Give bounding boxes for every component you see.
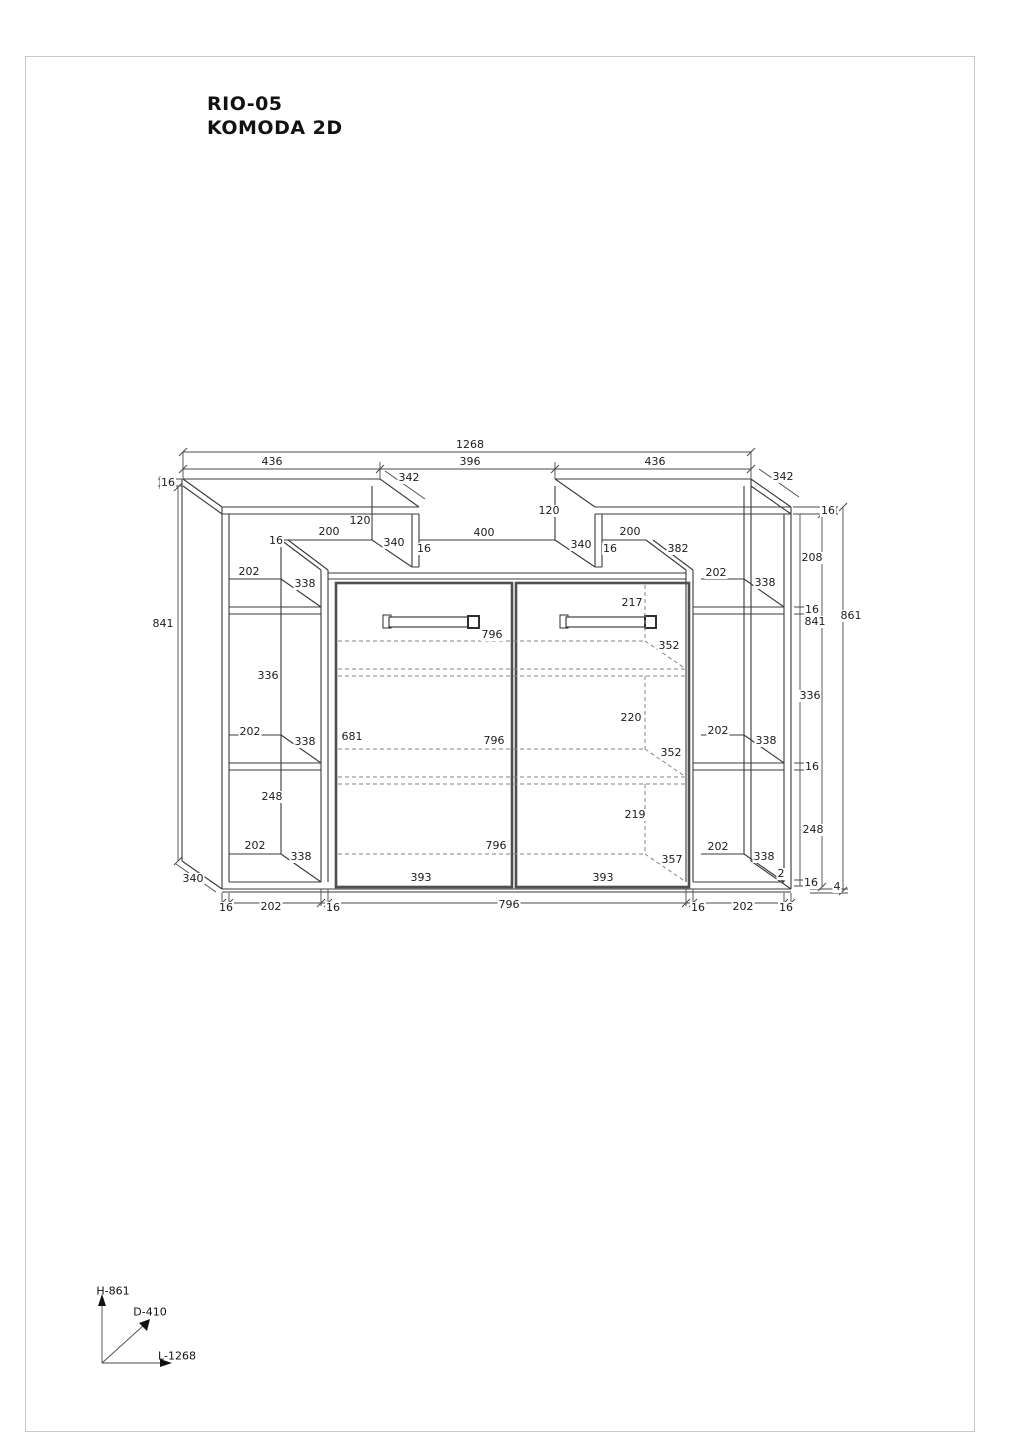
height-arrowhead [98, 1294, 106, 1306]
dimension-lines [102, 452, 848, 1363]
doors [336, 583, 689, 887]
depth-arrowhead [139, 1319, 150, 1331]
left-handle-end [468, 616, 479, 628]
right-door [516, 583, 689, 887]
dimension-ticks [174, 448, 847, 907]
cabinet-outline [182, 479, 791, 892]
left-handle-bar [389, 617, 475, 627]
right-handle-bar [566, 617, 652, 627]
door-handles [383, 615, 656, 628]
right-handle-end [645, 616, 656, 628]
drawing-sheet: RIO-05 KOMODA 2D [0, 0, 1024, 1449]
length-arrowhead [160, 1359, 172, 1367]
left-door [336, 583, 512, 887]
technical-drawing [0, 0, 1024, 1449]
